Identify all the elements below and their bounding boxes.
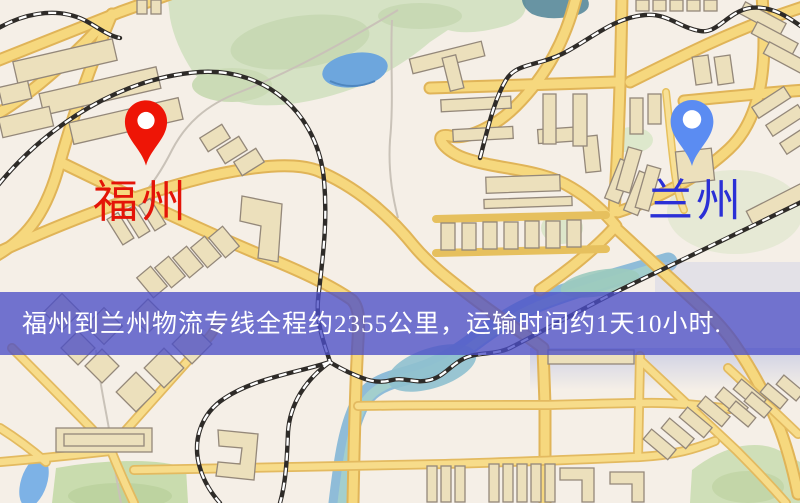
destination-city-label: 兰州 <box>648 179 744 224</box>
origin-pin-icon <box>123 97 169 169</box>
route-banner-text: 福州到兰州物流专线全程约2355公里，运输时间约1天10小时. <box>22 304 722 340</box>
destination-pin-icon <box>668 98 716 168</box>
map-image <box>0 0 800 503</box>
logistics-route-map: 福州到兰州物流专线全程约2355公里，运输时间约1天10小时. 福州 兰州 <box>0 0 800 503</box>
route-banner: 福州到兰州物流专线全程约2355公里，运输时间约1天10小时. <box>0 292 800 355</box>
origin-city-label: 福州 <box>93 180 189 225</box>
